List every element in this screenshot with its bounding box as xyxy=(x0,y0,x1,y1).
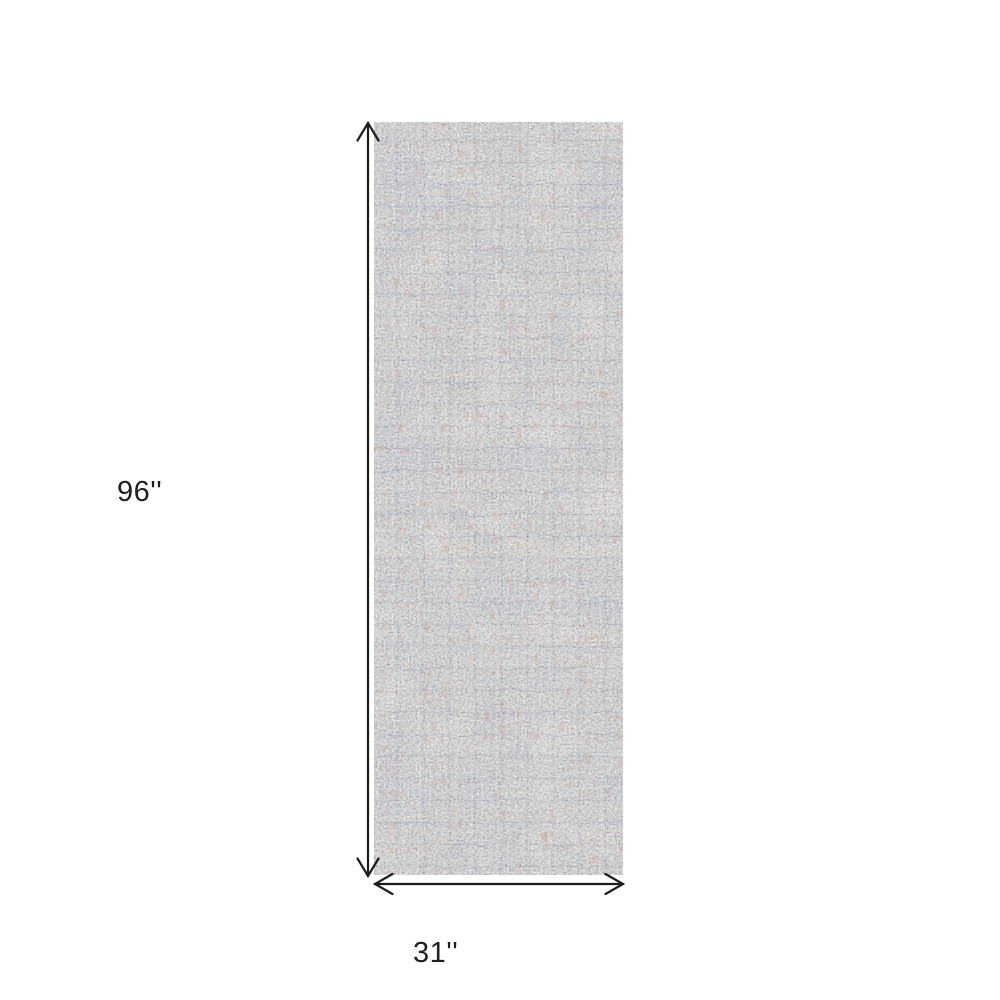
height-dimension-label: 96'' xyxy=(117,477,162,509)
rug-darkfleck-layer xyxy=(374,122,623,875)
width-dimension-label: 31'' xyxy=(413,938,458,970)
arrowhead-right-icon xyxy=(606,874,624,894)
rug-texture xyxy=(374,122,623,875)
product-dimension-diagram: 96'' 31'' xyxy=(0,0,1000,1000)
width-dimension-arrow xyxy=(375,874,623,894)
rug-image xyxy=(374,122,623,875)
arrowhead-left-icon xyxy=(375,874,393,894)
